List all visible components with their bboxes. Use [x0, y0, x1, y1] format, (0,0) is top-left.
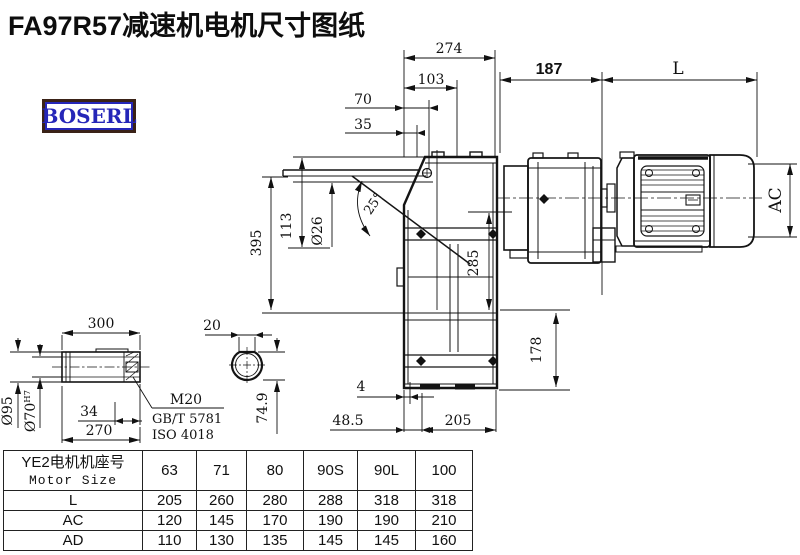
- dim-270-label: 270: [86, 423, 113, 439]
- dim-34-label: 34: [80, 404, 98, 420]
- cell: 318: [358, 491, 416, 511]
- dim-AC-label: AC: [766, 187, 786, 213]
- dim-4-label: 4: [357, 379, 366, 395]
- cell: 318: [416, 491, 473, 511]
- size-col-80: 80: [247, 451, 304, 491]
- size-col-100: 100: [416, 451, 473, 491]
- dim-L-label: L: [672, 59, 683, 79]
- cell: 190: [304, 511, 358, 531]
- r57-gear-unit: [504, 153, 615, 263]
- table-row-AC: AC 120 145 170 190 190 210: [4, 511, 473, 531]
- size-col-63: 63: [143, 451, 197, 491]
- dim-285-label: 285: [466, 250, 482, 277]
- table-header-row: YE2电机机座号 Motor Size 63 71 80 90S 90L 100: [4, 451, 473, 491]
- cell: 288: [304, 491, 358, 511]
- dim-205-label: 205: [445, 413, 472, 429]
- size-col-90s: 90S: [304, 451, 358, 491]
- dim-d26-label: Ø26: [310, 216, 326, 245]
- dim-74-9-label: 74.9: [255, 392, 271, 423]
- dim-300-label: 300: [88, 316, 115, 332]
- cell: 170: [247, 511, 304, 531]
- dim-395-label: 395: [249, 230, 265, 257]
- motor-size-header-en: Motor Size: [4, 472, 142, 489]
- motor-drawing: [616, 152, 754, 252]
- dim-25deg-label: 25°: [361, 190, 386, 217]
- motor-size-header-cell: YE2电机机座号 Motor Size: [4, 451, 143, 491]
- cell: 135: [247, 531, 304, 551]
- dim-d95-label: Ø95: [0, 396, 16, 425]
- cell: 190: [358, 511, 416, 531]
- cell: 210: [416, 511, 473, 531]
- dim-187-label: 187: [536, 61, 563, 78]
- cell: 145: [304, 531, 358, 551]
- dim-d70-label: Ø70H7: [23, 390, 39, 432]
- reducer-dimension-drawing-page: FA97R57减速机电机尺寸图纸 BOSERL: [0, 0, 800, 555]
- row-label: AD: [4, 531, 143, 551]
- dim-48-5-label: 48.5: [332, 413, 363, 429]
- cell: 160: [416, 531, 473, 551]
- small-dim-arrowheads: [115, 105, 438, 433]
- dim-178-label: 178: [529, 337, 545, 364]
- dim-103-label: 103: [418, 72, 445, 88]
- dim-35-label: 35: [354, 117, 372, 133]
- shaft-detail-view: [52, 349, 150, 382]
- r57-bolt-marker: [539, 194, 549, 204]
- size-col-71: 71: [197, 451, 247, 491]
- cell: 145: [197, 511, 247, 531]
- size-col-90l: 90L: [358, 451, 416, 491]
- dim-274-label: 274: [436, 41, 463, 57]
- cell: 260: [197, 491, 247, 511]
- gearbox-bolt-markers: [416, 229, 498, 366]
- dim-20-label: 20: [203, 318, 221, 334]
- std-gb-label: GB/T 5781: [152, 412, 222, 427]
- std-iso-label: ISO 4018: [152, 428, 214, 443]
- motor-size-header-cn: YE2电机机座号: [4, 453, 142, 472]
- cell: 205: [143, 491, 197, 511]
- cell: 110: [143, 531, 197, 551]
- table-row-AD: AD 110 130 135 145 145 160: [4, 531, 473, 551]
- cell: 120: [143, 511, 197, 531]
- cell: 145: [358, 531, 416, 551]
- torque-arm: [283, 168, 470, 264]
- cell: 130: [197, 531, 247, 551]
- dim-70-label: 70: [354, 92, 372, 108]
- row-label: AC: [4, 511, 143, 531]
- thread-m20-label: M20: [170, 392, 202, 408]
- cell: 280: [247, 491, 304, 511]
- table-row-L: L 205 260 280 288 318 318: [4, 491, 473, 511]
- gearbox-outline: [397, 150, 497, 388]
- motor-size-table: YE2电机机座号 Motor Size 63 71 80 90S 90L 100…: [3, 450, 473, 551]
- dim-113-label: 113: [279, 213, 295, 240]
- row-label: L: [4, 491, 143, 511]
